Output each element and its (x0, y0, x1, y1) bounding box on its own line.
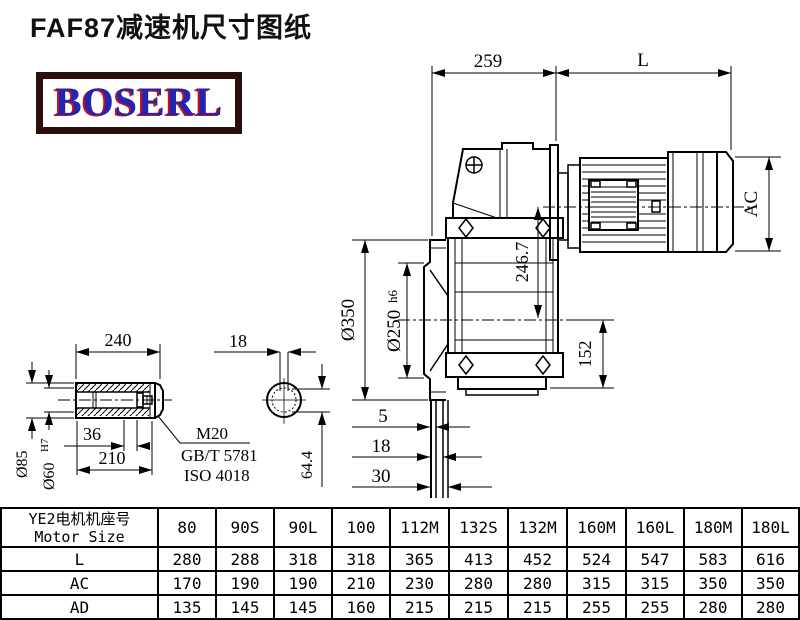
cell: 318 (274, 547, 332, 571)
main-dimensions (352, 66, 781, 487)
dim-246-7: 246.7 (512, 242, 532, 283)
cell: 255 (626, 595, 684, 619)
cell: 315 (567, 571, 626, 595)
header-en: Motor Size (2, 528, 157, 546)
col-header: 100 (332, 508, 390, 547)
dim-350: Ø350 (338, 299, 359, 341)
cell: 230 (390, 571, 449, 595)
col-header: 180M (684, 508, 742, 547)
dim-36: 36 (83, 424, 101, 444)
col-header: 132M (508, 508, 567, 547)
label-iso: ISO 4018 (184, 466, 250, 485)
dim-AC: AC (741, 191, 762, 217)
dim-259: 259 (474, 51, 503, 72)
fan-cowl (668, 152, 733, 252)
table-row-AC: AC 170 190 190 210 230 280 280 315 315 3… (1, 571, 799, 595)
motor-stator (589, 180, 638, 230)
motor-size-table: YE2电机机座号 Motor Size 80 90S 90L 100 112M … (0, 507, 800, 620)
cell: 413 (449, 547, 508, 571)
gearbox-housing (446, 143, 563, 395)
table-row-AD: AD 135 145 145 160 215 215 215 255 255 2… (1, 595, 799, 619)
cell: 583 (684, 547, 742, 571)
cell: 524 (567, 547, 626, 571)
cell: 215 (390, 595, 449, 619)
cell: 280 (508, 571, 567, 595)
cell: 280 (158, 547, 216, 571)
dim-60: Ø60 (41, 462, 58, 490)
dim-18b: 18 (372, 436, 391, 457)
cell: 318 (332, 547, 390, 571)
col-header: 112M (390, 508, 449, 547)
brand-logo: BOSERL (36, 72, 242, 134)
eyebolt-icon (466, 157, 482, 173)
dim-250-tol: h6 (385, 290, 400, 304)
motor (543, 152, 750, 252)
label-gb: GB/T 5781 (181, 446, 258, 465)
cell: 190 (274, 571, 332, 595)
label-m20: M20 (196, 424, 228, 443)
cell: 145 (274, 595, 332, 619)
col-header: 160M (567, 508, 626, 547)
cell: 190 (216, 571, 274, 595)
dim-60-tol: H7 (39, 438, 51, 452)
cell: 452 (508, 547, 567, 571)
hollow-shaft-detail (58, 383, 172, 418)
cell: 315 (626, 571, 684, 595)
dim-L: L (637, 50, 649, 71)
cell: 210 (332, 571, 390, 595)
row-header: YE2电机机座号 Motor Size (1, 508, 158, 547)
bolt-diamond-icons (459, 219, 550, 374)
cell: 280 (742, 595, 799, 619)
dim-64-4: 64.4 (299, 451, 316, 479)
row-label: AD (1, 595, 158, 619)
cell: 255 (567, 595, 626, 619)
col-header: 132S (449, 508, 508, 547)
col-header: 90L (274, 508, 332, 547)
cell: 350 (742, 571, 799, 595)
row-label: AC (1, 571, 158, 595)
page-title: FAF87减速机尺寸图纸 (30, 6, 312, 45)
header-cn: YE2电机机座号 (2, 510, 157, 528)
cell: 365 (390, 547, 449, 571)
cell: 350 (684, 571, 742, 595)
cell: 280 (684, 595, 742, 619)
dim-210: 210 (99, 448, 126, 468)
shaft-section-circle (262, 378, 306, 424)
cell: 135 (158, 595, 216, 619)
col-header: 90S (216, 508, 274, 547)
detail-dimensions (26, 344, 330, 487)
table-header-row: YE2电机机座号 Motor Size 80 90S 90L 100 112M … (1, 508, 799, 547)
col-header: 180L (742, 508, 799, 547)
cell: 547 (626, 547, 684, 571)
cell: 616 (742, 547, 799, 571)
row-label: L (1, 547, 158, 571)
col-header: 160L (626, 508, 684, 547)
output-flange (424, 240, 448, 498)
dim-152: 152 (575, 341, 595, 368)
dim-85: Ø85 (14, 450, 31, 478)
dim-30: 30 (372, 466, 391, 487)
table-row-L: L 280 288 318 318 365 413 452 524 547 58… (1, 547, 799, 571)
dim-18a: 18 (229, 331, 247, 351)
cell: 145 (216, 595, 274, 619)
cell: 170 (158, 571, 216, 595)
cell: 280 (449, 571, 508, 595)
col-header: 80 (158, 508, 216, 547)
dim-240: 240 (105, 330, 132, 350)
cell: 288 (216, 547, 274, 571)
cell: 215 (508, 595, 567, 619)
cell: 215 (449, 595, 508, 619)
cell: 160 (332, 595, 390, 619)
dim-5: 5 (378, 406, 388, 427)
dim-250: Ø250 (384, 310, 405, 352)
